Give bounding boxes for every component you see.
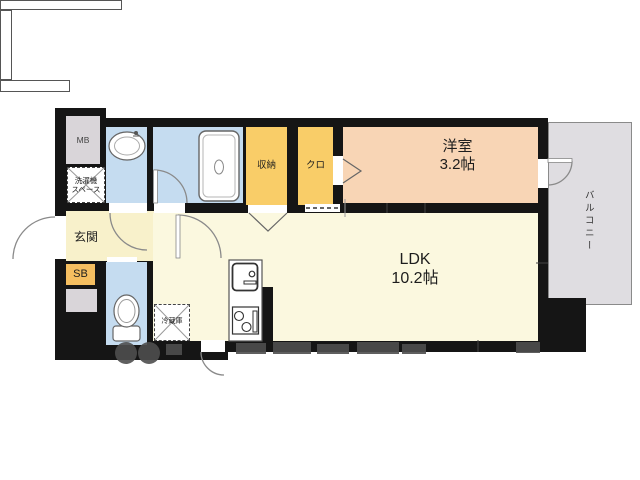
wall-kitchen-stub xyxy=(262,287,273,341)
bottom-window xyxy=(0,80,70,92)
western-room-name: 洋室 xyxy=(442,138,472,156)
sliding-door-band xyxy=(0,0,122,10)
bottom-door-gap xyxy=(201,340,225,352)
ldk-label: LDK 10.2帖 xyxy=(330,243,500,295)
balcony-label: バルコニー xyxy=(580,183,596,259)
ldk-size: 10.2帖 xyxy=(391,269,438,288)
toilet-room xyxy=(106,262,147,345)
wall-corner-block xyxy=(548,298,586,352)
closet-label: クロ xyxy=(298,127,333,205)
floor-plan-canvas: MB 洗濯機 スペース 玄関 SB 収納 クロ 洋室 3.2帖 LDK 10.2… xyxy=(0,0,640,480)
washer-space-label-line2: スペース xyxy=(71,185,100,194)
ldk-name: LDK xyxy=(399,250,430,269)
western-room-label: 洋室 3.2帖 xyxy=(360,132,555,180)
storage-label: 収納 xyxy=(246,127,287,205)
balcony-window xyxy=(0,10,12,80)
washroom xyxy=(106,127,147,203)
storage-door-gap xyxy=(248,205,287,213)
fridge-label: 冷蔵庫 xyxy=(154,304,190,341)
meter-box-label: MB xyxy=(66,116,100,164)
bathroom-door-gap xyxy=(154,203,185,213)
entrance-door-arc xyxy=(13,217,55,259)
washroom-door-gap xyxy=(109,203,147,213)
entrance-label: 玄関 xyxy=(62,224,110,250)
washer-space-label-line1: 洗濯機 xyxy=(75,176,98,185)
washer-space-label: 洗濯機 スペース xyxy=(64,170,108,200)
closet-door-gap xyxy=(333,156,343,185)
toilet-door-gap xyxy=(107,257,137,262)
sb-label: SB xyxy=(66,264,95,285)
western-room-size: 3.2帖 xyxy=(440,156,476,174)
partition-dashed-gap xyxy=(305,204,340,212)
duct-box xyxy=(66,289,97,312)
wall-bottom-left xyxy=(106,352,228,360)
bathroom xyxy=(153,127,243,203)
